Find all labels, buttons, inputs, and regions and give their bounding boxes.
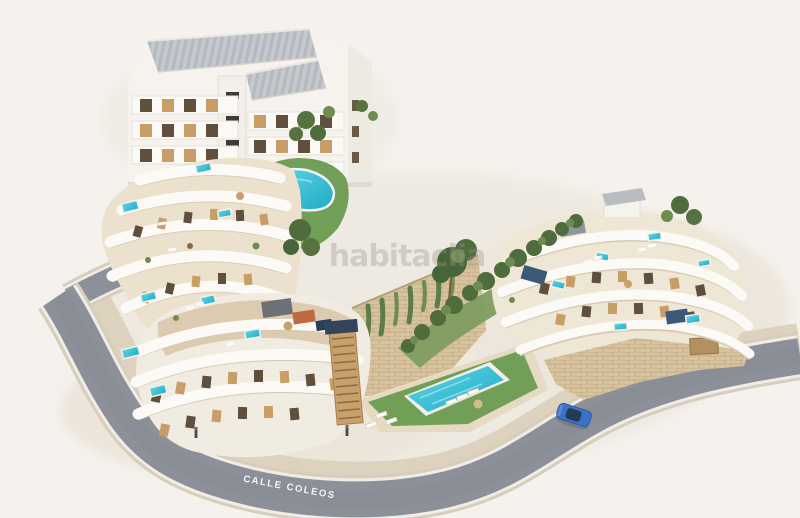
render-canvas: CALLE COLEOS habitaclia <box>0 0 800 518</box>
scene-svg: CALLE COLEOS habitaclia <box>0 0 800 518</box>
watermark-text: habitaclia <box>329 239 486 274</box>
umbrella <box>474 400 483 409</box>
balconies-left-wing <box>132 96 238 164</box>
